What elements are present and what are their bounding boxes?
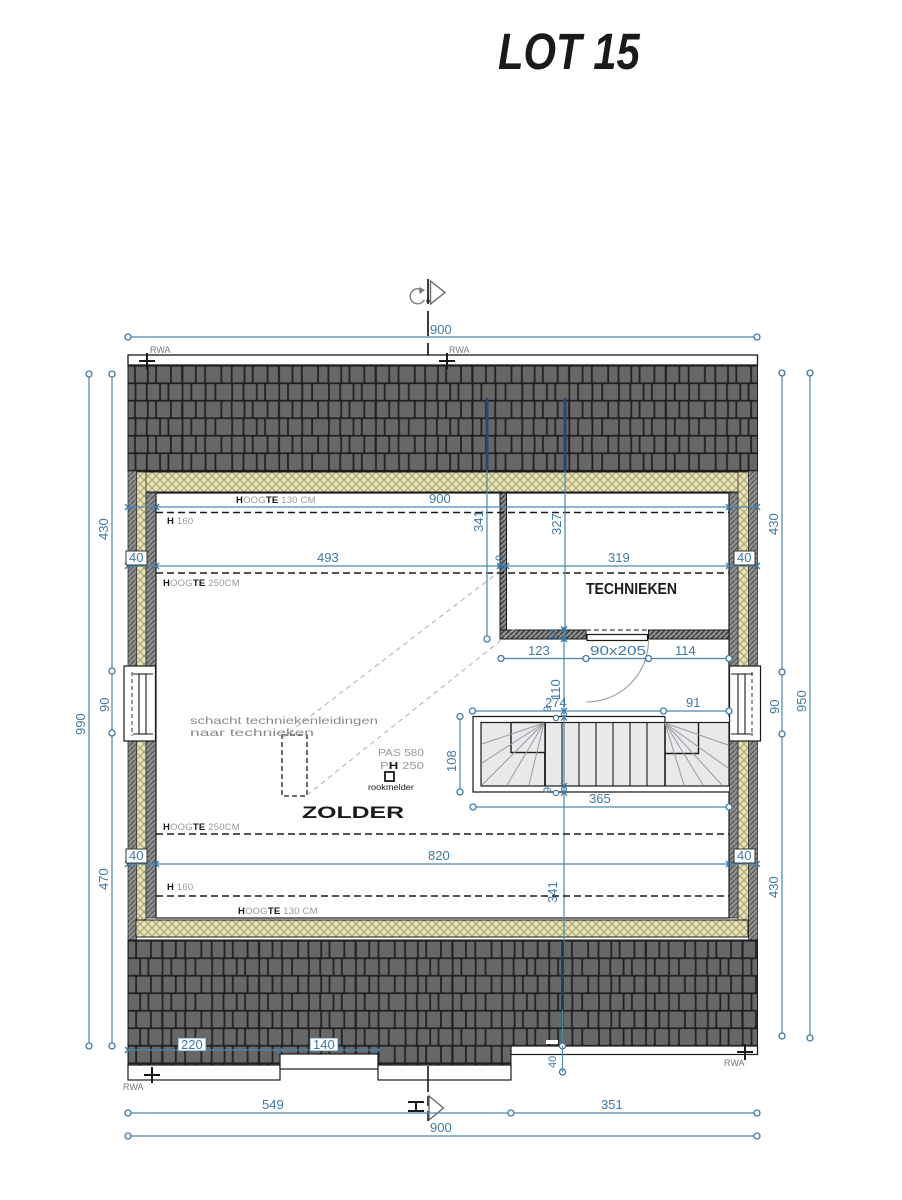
svg-text:220: 220: [181, 1037, 203, 1052]
svg-text:140: 140: [313, 1037, 335, 1052]
svg-text:900: 900: [430, 322, 452, 337]
svg-text:493: 493: [317, 550, 339, 565]
svg-text:40: 40: [737, 848, 751, 863]
svg-text:990: 990: [73, 713, 88, 735]
svg-text:9: 9: [494, 555, 506, 561]
svg-text:9: 9: [542, 787, 554, 793]
svg-text:549: 549: [262, 1097, 284, 1112]
svg-text:RWA: RWA: [123, 1082, 144, 1092]
svg-text:123: 123: [528, 643, 550, 658]
svg-text:900: 900: [429, 491, 451, 506]
svg-text:RWA: RWA: [150, 345, 171, 355]
svg-text:430: 430: [766, 876, 781, 898]
svg-text:PH 250: PH 250: [380, 761, 425, 772]
svg-text:430: 430: [766, 513, 781, 535]
svg-text:RWA: RWA: [449, 345, 470, 355]
svg-text:PAS 580: PAS 580: [378, 748, 425, 759]
svg-text:950: 950: [794, 690, 809, 712]
svg-text:341: 341: [471, 510, 486, 532]
svg-text:470: 470: [96, 868, 111, 890]
svg-text:900: 900: [430, 1120, 452, 1135]
svg-text:40: 40: [129, 550, 143, 565]
svg-text:40: 40: [547, 1056, 559, 1068]
svg-text:351: 351: [601, 1097, 623, 1112]
svg-text:319: 319: [608, 550, 630, 565]
svg-text:430: 430: [96, 518, 111, 540]
svg-text:90: 90: [97, 698, 112, 712]
svg-text:108: 108: [444, 750, 459, 772]
svg-text:LOT 15: LOT 15: [498, 23, 641, 80]
svg-text:rookmelder: rookmelder: [368, 782, 414, 792]
svg-text:H 160: H 160: [167, 882, 193, 893]
svg-text:40: 40: [129, 848, 143, 863]
svg-text:91: 91: [686, 695, 700, 710]
svg-text:HOOGTE 250CM: HOOGTE 250CM: [163, 578, 240, 589]
svg-text:naar technieken: naar technieken: [190, 727, 314, 739]
svg-text:TECHNIEKEN: TECHNIEKEN: [586, 581, 677, 598]
svg-text:14: 14: [548, 629, 560, 641]
svg-text:90x205: 90x205: [590, 643, 646, 658]
svg-text:RWA: RWA: [724, 1058, 745, 1068]
svg-text:HOOGTE 130 CM: HOOGTE 130 CM: [236, 495, 316, 506]
svg-text:820: 820: [428, 848, 450, 863]
svg-text:ZOLDER: ZOLDER: [302, 803, 404, 822]
svg-text:341: 341: [545, 881, 560, 903]
svg-text:327: 327: [549, 513, 564, 535]
svg-text:H 160: H 160: [167, 516, 193, 527]
svg-text:365: 365: [589, 791, 611, 806]
svg-text:40: 40: [737, 550, 751, 565]
svg-text:9: 9: [542, 706, 554, 712]
svg-text:schacht techniekenleidingen: schacht techniekenleidingen: [190, 715, 378, 727]
svg-text:HOOGTE 130 CM: HOOGTE 130 CM: [238, 906, 318, 917]
svg-text:90: 90: [767, 700, 782, 714]
svg-text:HOOGTE 250CM: HOOGTE 250CM: [163, 822, 240, 833]
svg-text:114: 114: [675, 643, 696, 658]
